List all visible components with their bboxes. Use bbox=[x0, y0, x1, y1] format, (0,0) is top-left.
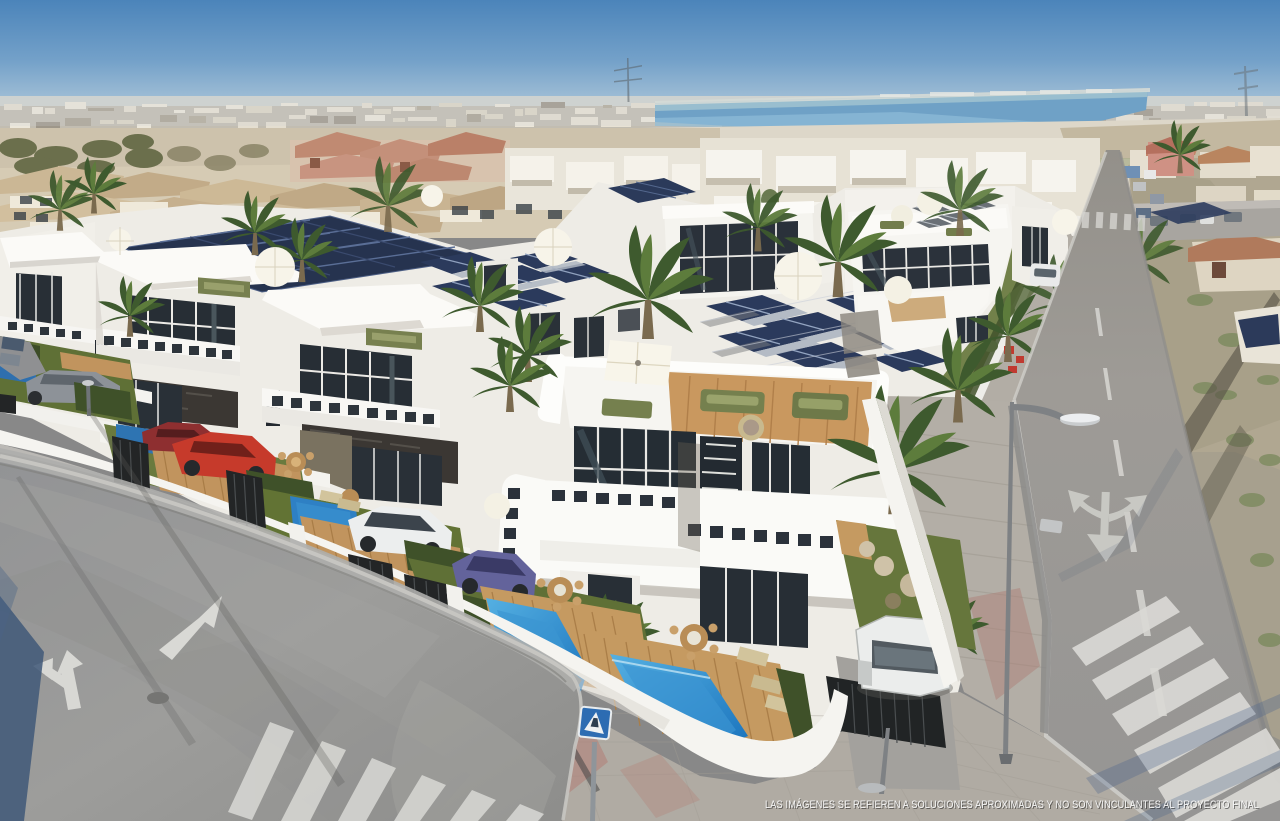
svg-text:LAS IMÁGENES SE REFIEREN A SOL: LAS IMÁGENES SE REFIEREN A SOLUCIONES AP… bbox=[765, 798, 1259, 811]
